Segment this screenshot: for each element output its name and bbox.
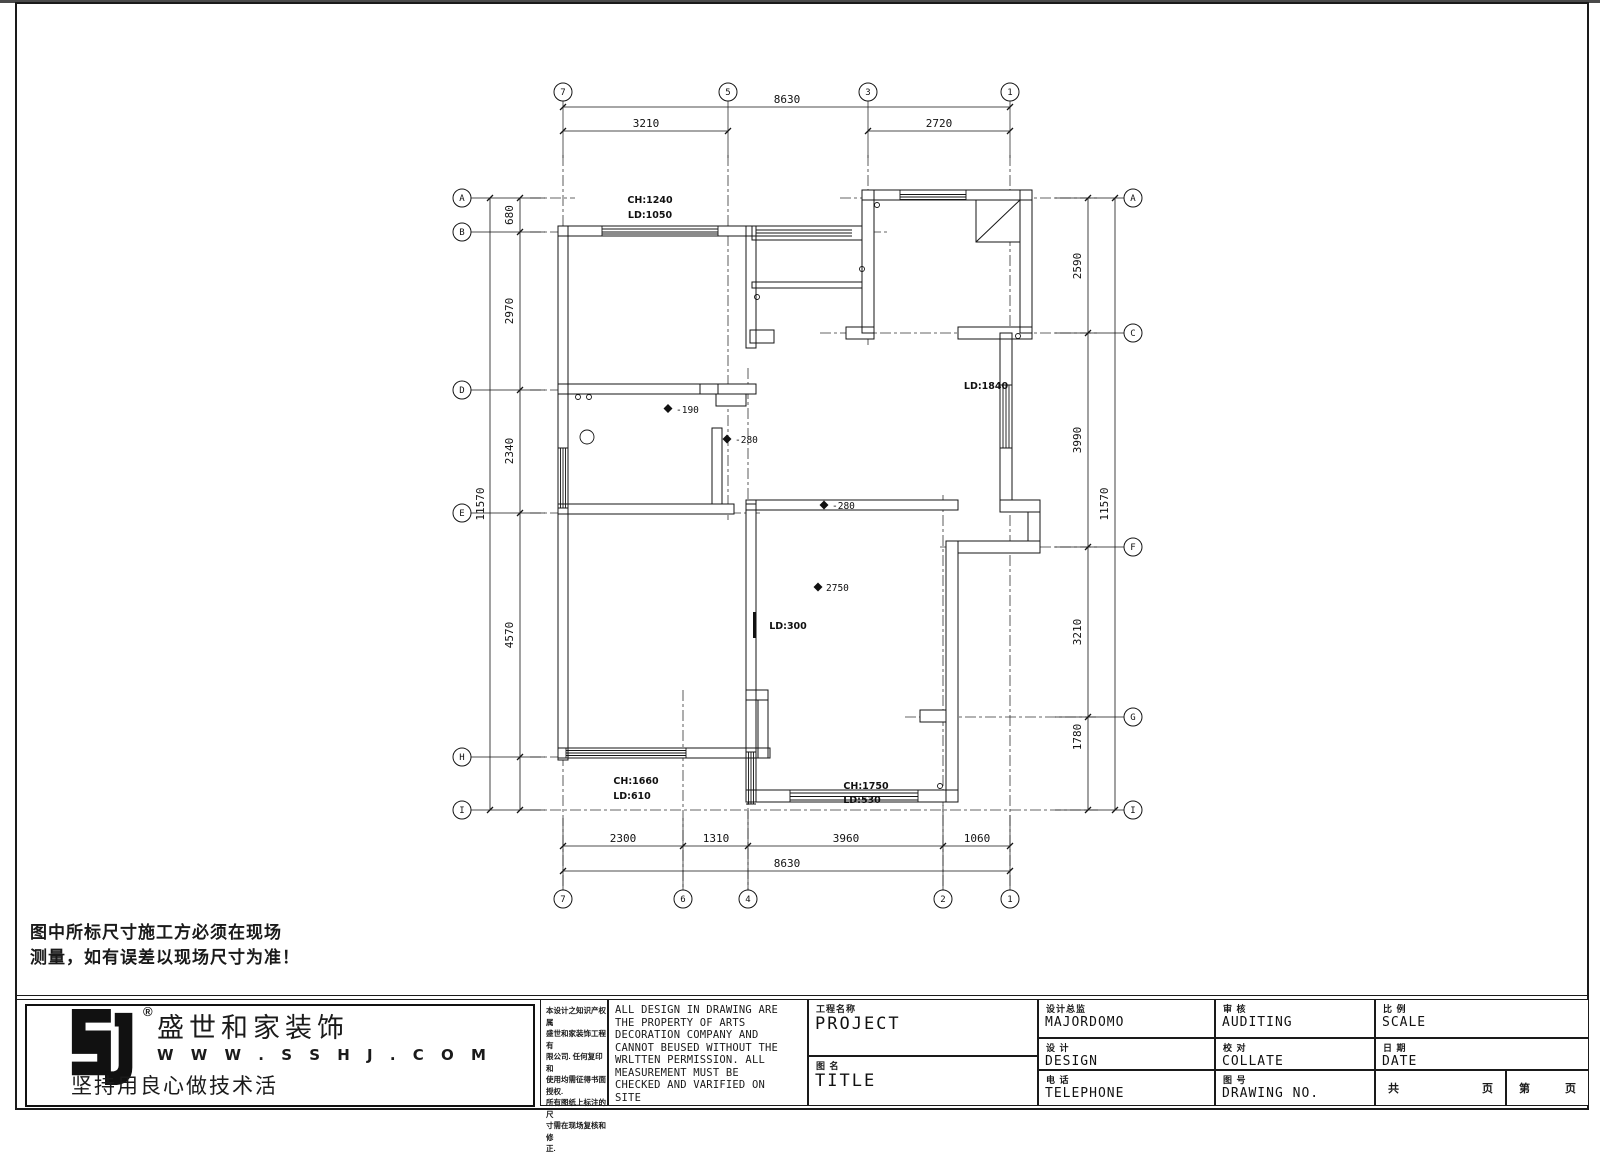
dim-bottom-1: 2300: [610, 832, 637, 845]
grid-bubble-label: 1: [1007, 895, 1012, 905]
window-label-ld1840: LD:1840: [964, 381, 1009, 392]
floor-plan-svg: 8630 3210 2720 2300 1310 3960 1060 8630 …: [425, 60, 1150, 910]
copyright-notice-cn: 本设计之知识产权属 盛世和家装饰工程有 限公司. 任何复印和 使用均需征得书面授…: [540, 999, 608, 1106]
grid-bubble-left-2: B: [453, 223, 471, 241]
grid-bubble-bottom-3: 4: [739, 890, 757, 908]
drawing-no-label-cn: 图 号: [1223, 1075, 1374, 1086]
grid-bubble-label: C: [1130, 329, 1135, 339]
dim-bottom-3: 3960: [833, 832, 860, 845]
collate-label-en: COLLATE: [1222, 1054, 1374, 1069]
grid-bubble-right-4: G: [1124, 708, 1142, 726]
grid-bubble-label: 4: [745, 895, 750, 905]
pages-number-label: 第: [1519, 1080, 1530, 1096]
warning-line-1: 图中所标尺寸施工方必须在现场: [30, 920, 300, 945]
level-label-280a: -280: [735, 435, 758, 446]
pages-number-unit: 页: [1565, 1080, 1576, 1096]
grid-bubble-top-4: 1: [1001, 83, 1019, 101]
grid-bubble-label: 7: [560, 895, 565, 905]
site-measure-warning: 图中所标尺寸施工方必须在现场 测量，如有误差以现场尺寸为准！: [30, 920, 300, 970]
grid-bubble-label: 5: [725, 88, 730, 98]
grid-bubble-left-3: D: [453, 381, 471, 399]
level-label-190: -190: [676, 405, 699, 416]
grid-bubble-left-5: H: [453, 748, 471, 766]
company-logo-box: ® 盛世和家装饰 W W W . S S H J . C O M 坚持用良心做技…: [25, 1004, 535, 1107]
window-label-ch1750: CH:1750: [843, 781, 889, 792]
window-label-ld300: LD:300: [769, 621, 807, 632]
project-label-en: PROJECT: [815, 1017, 1037, 1032]
collate-label-cn: 校 对: [1223, 1043, 1374, 1054]
grid-bubble-label: H: [459, 753, 464, 763]
window-label-ch1240: CH:1240: [627, 195, 673, 206]
dim-bottom-4: 1060: [964, 832, 991, 845]
window-label-ld530: LD:530: [843, 795, 881, 806]
grid-bubble-label: 2: [940, 895, 945, 905]
dim-left-2: 2970: [503, 298, 516, 325]
telephone-cell: 电 话 TELEPHONE: [1038, 1070, 1215, 1106]
dim-right-2: 3990: [1071, 427, 1084, 454]
level-label-2750: 2750: [826, 583, 849, 594]
grid-bubble-label: 7: [560, 88, 565, 98]
project-cell: 工程名称 PROJECT: [808, 999, 1038, 1056]
pages-number-cell: 第 页: [1506, 1070, 1589, 1106]
cn-notice-line: 使用均需征得书面授权.: [546, 1074, 607, 1097]
dim-top-left: 3210: [633, 117, 660, 130]
date-cell: 日 期 DATE: [1375, 1038, 1589, 1070]
company-name: 盛世和家装饰: [157, 1006, 349, 1045]
majordomo-label-en: MAJORDOMO: [1045, 1015, 1214, 1030]
level-label-280b: -280: [832, 501, 855, 512]
collate-cell: 校 对 COLLATE: [1215, 1038, 1375, 1070]
dim-left-4: 4570: [503, 622, 516, 649]
title-label-en: TITLE: [815, 1074, 1037, 1089]
dim-top-right: 2720: [926, 117, 953, 130]
grid-bubble-top-1: 7: [554, 83, 572, 101]
grid-bubble-label: 1: [1007, 88, 1012, 98]
dim-bottom-overall: 8630: [774, 857, 801, 870]
auditing-label-en: AUDITING: [1222, 1015, 1374, 1030]
date-label-en: DATE: [1382, 1054, 1588, 1069]
scale-cell: 比 例 SCALE: [1375, 999, 1589, 1038]
cn-notice-line: 限公司. 任何复印和: [546, 1051, 607, 1074]
company-slogan: 坚持用良心做技术活: [71, 1070, 278, 1100]
window-label-ld1050: LD:1050: [628, 210, 673, 221]
walls: [558, 190, 1040, 802]
majordomo-cell: 设计总监 MAJORDOMO: [1038, 999, 1215, 1038]
grid-bubble-label: G: [1130, 713, 1135, 723]
scale-label-en: SCALE: [1382, 1015, 1588, 1030]
grid-bubble-bottom-4: 2: [934, 890, 952, 908]
date-label-cn: 日 期: [1383, 1043, 1588, 1054]
grid-bubble-top-3: 3: [859, 83, 877, 101]
grid-bubble-left-6: I: [453, 801, 471, 819]
grid-bubble-right-1: A: [1124, 189, 1142, 207]
title-cell: 图 名 TITLE: [808, 1056, 1038, 1106]
grid-bubble-left-4: E: [453, 504, 471, 522]
design-label-en: DESIGN: [1045, 1054, 1214, 1069]
pages-total-label: 共: [1388, 1080, 1399, 1096]
grid-bubble-right-5: I: [1124, 801, 1142, 819]
grid-bubble-right-2: C: [1124, 324, 1142, 342]
grid-bubble-bottom-2: 6: [674, 890, 692, 908]
dim-right-4: 1780: [1071, 724, 1084, 751]
auditing-label-cn: 审 核: [1223, 1004, 1374, 1015]
cn-notice-line: 盛世和家装饰工程有: [546, 1028, 607, 1051]
grid-bubbles: 7 5 3 1 7 6 4 2 1 A B D E H I A C F G I: [453, 83, 1142, 908]
grid-bubble-right-3: F: [1124, 538, 1142, 556]
company-website: W W W . S S H J . C O M: [157, 1046, 492, 1064]
grid-bubble-label: I: [1130, 806, 1135, 816]
grid-bubble-label: B: [459, 228, 464, 238]
dim-right-1: 2590: [1071, 253, 1084, 280]
dim-left-overall: 11570: [474, 487, 487, 520]
pages-total-unit: 页: [1482, 1080, 1493, 1096]
registered-mark: ®: [143, 1004, 153, 1019]
design-cell: 设 计 DESIGN: [1038, 1038, 1215, 1070]
dim-top-overall: 8630: [774, 93, 801, 106]
cn-notice-line: 寸需在现场复核和修: [546, 1120, 607, 1143]
cn-notice-line: 正.: [546, 1143, 607, 1155]
drawing-no-cell: 图 号 DRAWING NO.: [1215, 1070, 1375, 1106]
grid-bubble-label: E: [459, 509, 464, 519]
dim-right-overall: 11570: [1098, 487, 1111, 520]
grid-bubble-label: A: [1130, 194, 1136, 204]
window-label-ch1660: CH:1660: [613, 776, 659, 787]
window-label-ld610: LD:610: [613, 791, 651, 802]
grid-bubble-label: A: [459, 194, 465, 204]
pages-total-cell: 共 页: [1375, 1070, 1506, 1106]
grid-bubble-bottom-5: 1: [1001, 890, 1019, 908]
design-label-cn: 设 计: [1046, 1043, 1214, 1054]
drawing-no-label-en: DRAWING NO.: [1222, 1086, 1374, 1101]
scale-label-cn: 比 例: [1383, 1004, 1588, 1015]
grid-bubble-label: F: [1130, 543, 1135, 553]
grid-bubble-left-1: A: [453, 189, 471, 207]
grid-bubble-label: D: [459, 386, 464, 396]
grid-bubble-top-2: 5: [719, 83, 737, 101]
dim-bottom-2: 1310: [703, 832, 730, 845]
titlebar-separator-line-1: [15, 995, 1589, 996]
dim-right-3: 3210: [1071, 619, 1084, 646]
auditing-cell: 审 核 AUDITING: [1215, 999, 1375, 1038]
majordomo-label-cn: 设计总监: [1046, 1004, 1214, 1015]
grid-bubble-bottom-1: 7: [554, 890, 572, 908]
cn-notice-line: 所有图纸上标注的尺: [546, 1097, 607, 1120]
grid-bubble-label: I: [459, 806, 464, 816]
grid-bubble-label: 6: [680, 895, 685, 905]
dim-left-1: 680: [503, 205, 516, 225]
warning-line-2: 测量，如有误差以现场尺寸为准！: [30, 945, 300, 970]
grid-bubble-label: 3: [865, 88, 870, 98]
telephone-label-en: TELEPHONE: [1045, 1086, 1214, 1101]
telephone-label-cn: 电 话: [1046, 1075, 1214, 1086]
copyright-notice-en: ALL DESIGN IN DRAWING ARE THE PROPERTY O…: [608, 999, 808, 1106]
dim-left-3: 2340: [503, 438, 516, 465]
cn-notice-line: 本设计之知识产权属: [546, 1005, 607, 1028]
